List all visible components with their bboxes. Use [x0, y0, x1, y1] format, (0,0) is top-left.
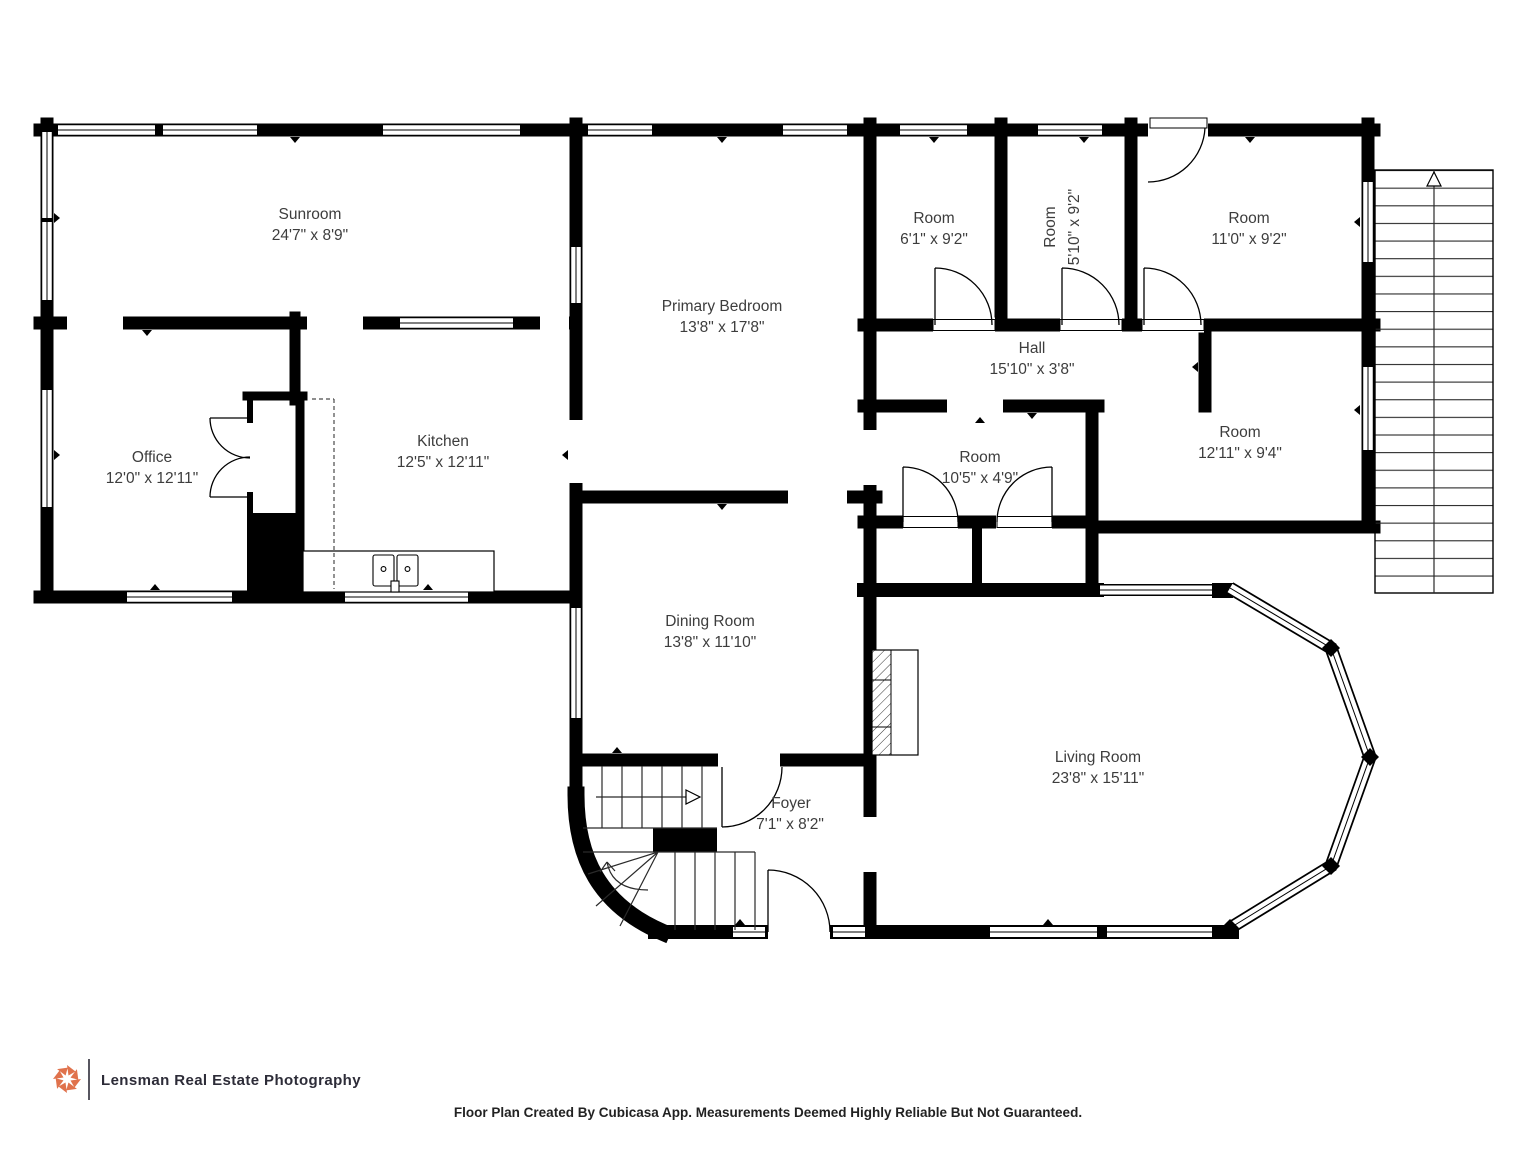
- room-dims: 6'1" x 9'2": [900, 231, 968, 248]
- room-name: Living Room: [1055, 749, 1141, 766]
- background: [0, 0, 1536, 1152]
- room-dims: 12'0" x 12'11": [106, 470, 198, 487]
- room-name: Hall: [1019, 340, 1046, 357]
- room-dims: 10'5" x 4'9": [942, 470, 1018, 487]
- room-dims: 23'8" x 15'11": [1052, 770, 1144, 787]
- room-dims: 12'11" x 9'4": [1198, 445, 1282, 462]
- room-dims: 15'10" x 3'8": [989, 361, 1074, 378]
- room-name: Primary Bedroom: [662, 298, 783, 315]
- room-dims: 24'7" x 8'9": [272, 227, 348, 244]
- room-dims: 13'8" x 11'10": [664, 634, 756, 651]
- room-dims: 12'5" x 12'11": [397, 454, 489, 471]
- room-name: Room: [913, 210, 954, 227]
- exterior-stairs: [1375, 170, 1493, 593]
- room-name: Room: [1228, 210, 1269, 227]
- disclaimer-text: Floor Plan Created By Cubicasa App. Meas…: [454, 1105, 1082, 1120]
- fireplace: [872, 650, 918, 755]
- room-dims: 5'10" x 9'2": [1066, 189, 1083, 265]
- room-dims: 13'8" x 17'8": [679, 319, 764, 336]
- room-name: Room: [959, 449, 1000, 466]
- room-name: Office: [132, 449, 172, 466]
- room-dims: 7'1" x 8'2": [756, 816, 824, 833]
- room-name: Dining Room: [665, 613, 755, 630]
- brand-name: Lensman Real Estate Photography: [101, 1072, 361, 1089]
- room-name: Kitchen: [417, 433, 469, 450]
- floor-plan-svg: Sunroom 24'7" x 8'9" Primary Bedroom 13'…: [0, 0, 1536, 1152]
- room-name: Sunroom: [279, 206, 342, 223]
- room-dims: 11'0" x 9'2": [1211, 231, 1286, 248]
- room-name: Room: [1219, 424, 1260, 441]
- room-name: Foyer: [771, 795, 811, 812]
- room-name: Room: [1042, 206, 1059, 247]
- floor-plan-page: Sunroom 24'7" x 8'9" Primary Bedroom 13'…: [0, 0, 1536, 1152]
